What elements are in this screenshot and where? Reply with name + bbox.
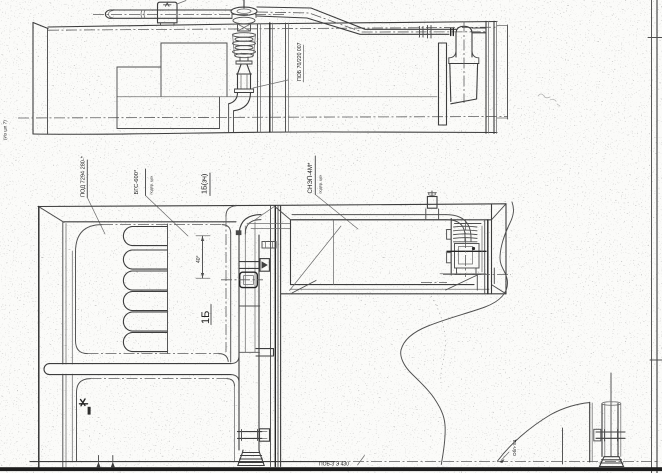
svg-text:БГС-600*: БГС-600* xyxy=(134,169,140,194)
svg-text:подпр. цех: подпр. цех xyxy=(319,175,323,194)
svg-text:подпр. цех: подпр. цех xyxy=(150,176,154,195)
svg-text:ПОД 7294 280-*: ПОД 7294 280-* xyxy=(81,155,87,197)
svg-text:ПОБ 70/220 007: ПОБ 70/220 007 xyxy=(297,42,303,81)
svg-text:ПОБ-3 Э 430: ПОБ-3 Э 430 xyxy=(319,462,349,468)
svg-text:1Б: 1Б xyxy=(200,311,212,324)
svg-text:СНЭП-4М*: СНЭП-4М* xyxy=(307,162,314,193)
svg-text:1Б(зч): 1Б(зч) xyxy=(200,174,209,194)
svg-text:40°: 40° xyxy=(196,255,202,263)
svg-text:(Из шп 7): (Из шп 7) xyxy=(3,120,8,140)
svg-text:Обл-тЩ: Обл-тЩ xyxy=(512,439,517,456)
